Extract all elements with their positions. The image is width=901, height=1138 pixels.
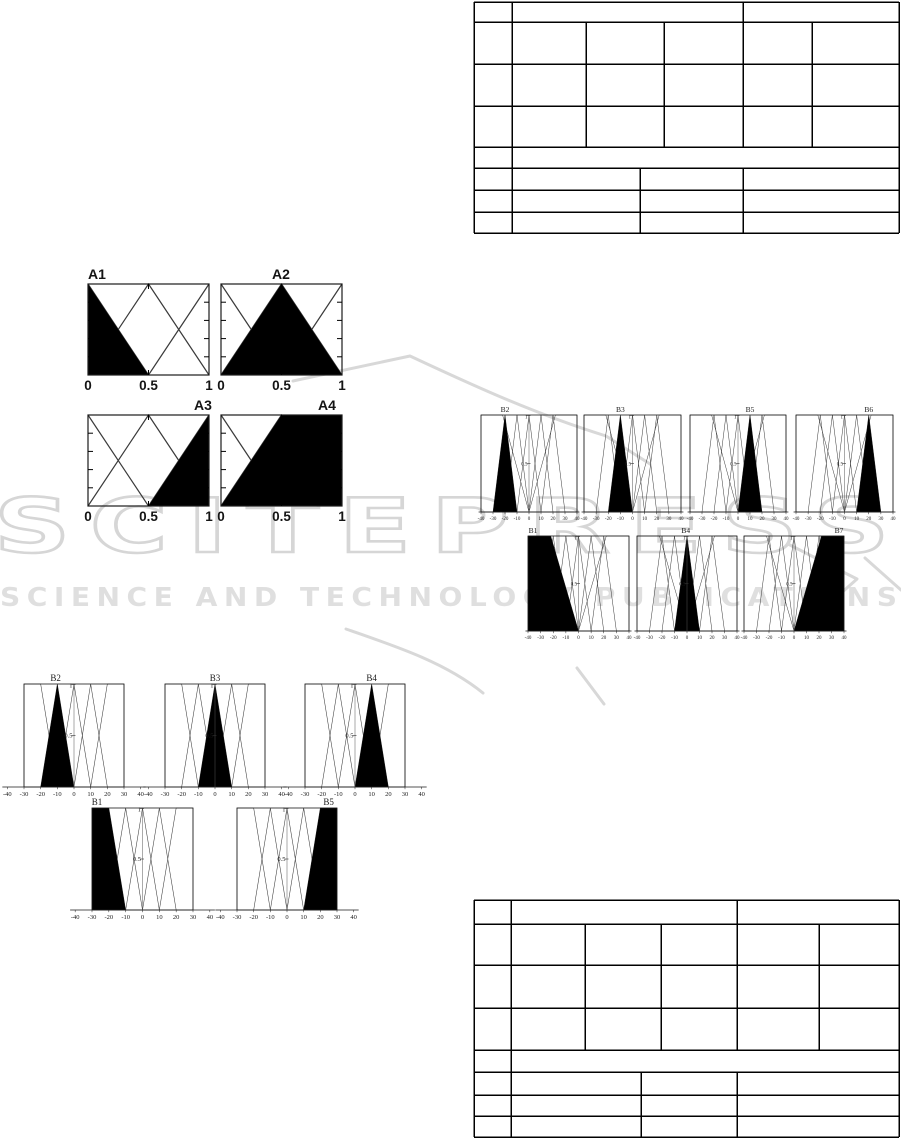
plot-title: B7 bbox=[835, 526, 844, 535]
x-tick-label: 40 bbox=[891, 517, 897, 522]
x-tick-label: 40 bbox=[418, 791, 425, 798]
x-tick-label: 40 bbox=[784, 517, 790, 522]
plot-title: B3 bbox=[210, 673, 221, 683]
x-tick-label: 0 bbox=[72, 791, 75, 798]
x-tick-label: 40 bbox=[350, 914, 357, 921]
plot-title: A4 bbox=[318, 397, 336, 413]
x-tick-label: 0 bbox=[213, 791, 216, 798]
x-tick-label: 0 bbox=[217, 378, 225, 393]
x-tick-label: -20 bbox=[502, 517, 509, 522]
x-tick-label: -40 bbox=[71, 914, 80, 921]
x-tick-label: -40 bbox=[793, 517, 800, 522]
x-tick-label: 0.5 bbox=[272, 509, 291, 524]
x-tick-label: 30 bbox=[614, 636, 620, 641]
table-top-grid bbox=[473, 1, 900, 235]
x-tick-label: 10 bbox=[156, 914, 163, 921]
plot-title: B2 bbox=[50, 673, 61, 683]
x-tick-label: 40 bbox=[679, 517, 685, 522]
y-tick-label-1: 1 bbox=[734, 416, 737, 421]
x-tick-label: 20 bbox=[551, 517, 557, 522]
x-tick-label: -40 bbox=[634, 636, 641, 641]
x-tick-label: -10 bbox=[617, 517, 624, 522]
x-tick-label: 30 bbox=[402, 791, 409, 798]
x-tick-label: 1 bbox=[338, 509, 346, 524]
x-tick-label: 10 bbox=[854, 517, 860, 522]
mf-plot-B2: -40-30-20-1001020304010.5B2 bbox=[478, 405, 580, 522]
x-tick-label: 1 bbox=[338, 378, 346, 393]
mf-plot-B4: -40-30-20-1001020304010.5B4 bbox=[283, 673, 426, 798]
x-tick-label: -40 bbox=[3, 791, 12, 798]
y-tick-label-05: 0.5 bbox=[521, 463, 528, 468]
x-tick-label: -10 bbox=[53, 791, 62, 798]
x-tick-label: -20 bbox=[605, 517, 612, 522]
x-tick-label: 30 bbox=[262, 791, 269, 798]
x-tick-label: -30 bbox=[88, 914, 97, 921]
plot-title: B1 bbox=[92, 797, 103, 807]
x-tick-label: 30 bbox=[772, 517, 778, 522]
x-tick-label: -20 bbox=[659, 636, 666, 641]
x-tick-label: -20 bbox=[249, 914, 258, 921]
x-tick-label: 30 bbox=[878, 517, 884, 522]
x-tick-label: 0 bbox=[793, 636, 796, 641]
x-tick-label: 1 bbox=[205, 509, 213, 524]
plot-title: B1 bbox=[529, 526, 538, 535]
y-tick-label-1: 1 bbox=[210, 683, 213, 690]
x-tick-label: 10 bbox=[300, 914, 307, 921]
x-tick-label: 20 bbox=[654, 517, 660, 522]
x-tick-label: -10 bbox=[563, 636, 570, 641]
x-tick-label: -30 bbox=[593, 517, 600, 522]
x-tick-label: -30 bbox=[537, 636, 544, 641]
x-tick-label: -10 bbox=[829, 517, 836, 522]
mf-plot-B6: -40-30-20-1001020304010.5B6 bbox=[793, 405, 896, 522]
fig-outputs-right: -40-30-20-1001020304010.5B2-40-30-20-100… bbox=[470, 395, 901, 647]
y-tick-label-1: 1 bbox=[282, 807, 285, 814]
mf-plot-B5: -40-30-20-1001020304010.5B5 bbox=[215, 797, 358, 921]
x-tick-label: -40 bbox=[478, 517, 485, 522]
plot-title: B5 bbox=[746, 405, 755, 414]
x-tick-label: -40 bbox=[741, 636, 748, 641]
x-tick-label: -30 bbox=[301, 791, 310, 798]
y-tick-label-05: 0.5 bbox=[679, 583, 686, 588]
x-tick-label: 20 bbox=[104, 791, 111, 798]
x-tick-label: 20 bbox=[601, 636, 607, 641]
plot-title: A1 bbox=[88, 266, 106, 282]
x-tick-label: 0 bbox=[353, 791, 356, 798]
y-tick-label-05: 0.5 bbox=[345, 733, 353, 740]
x-tick-label: -40 bbox=[284, 791, 293, 798]
x-tick-label: -10 bbox=[121, 914, 130, 921]
x-tick-label: -10 bbox=[194, 791, 203, 798]
x-tick-label: 20 bbox=[245, 791, 252, 798]
y-tick-label-1: 1 bbox=[629, 416, 632, 421]
x-tick-label: 10 bbox=[804, 636, 810, 641]
mf-plot-B3: -40-30-20-1001020304010.5B3 bbox=[143, 673, 286, 798]
x-tick-label: 10 bbox=[228, 791, 235, 798]
x-tick-label: -40 bbox=[581, 517, 588, 522]
paper-page: SCITEPRESS SCIENCE AND TECHNOLOGY PUBLIC… bbox=[0, 0, 901, 1138]
y-tick-label-1: 1 bbox=[790, 537, 793, 542]
x-tick-label: 30 bbox=[190, 914, 197, 921]
y-tick-label-05: 0.5 bbox=[64, 733, 72, 740]
x-tick-label: -10 bbox=[266, 914, 275, 921]
y-tick-label-05: 0.5 bbox=[730, 463, 737, 468]
x-tick-label: 0 bbox=[843, 517, 846, 522]
x-tick-label: 10 bbox=[589, 636, 595, 641]
y-tick-label-1: 1 bbox=[575, 537, 578, 542]
fig-inputs: 00.51A100.51A200.51A300.51A4 bbox=[55, 258, 385, 533]
x-tick-label: -40 bbox=[216, 914, 225, 921]
y-tick-label-05: 0.5 bbox=[277, 856, 285, 863]
x-tick-label: 20 bbox=[173, 914, 180, 921]
x-tick-label: -20 bbox=[36, 791, 45, 798]
plot-title: A3 bbox=[194, 397, 212, 413]
x-tick-label: 40 bbox=[735, 636, 741, 641]
x-tick-label: 40 bbox=[137, 791, 144, 798]
x-tick-label: -10 bbox=[514, 517, 521, 522]
plot-title: B5 bbox=[323, 797, 334, 807]
plot-title: B3 bbox=[616, 405, 625, 414]
x-tick-label: 10 bbox=[539, 517, 545, 522]
x-tick-label: 0.5 bbox=[139, 509, 158, 524]
y-tick-label-05: 0.5 bbox=[205, 733, 213, 740]
plot-title: B4 bbox=[366, 673, 377, 683]
mf-plot-B5: -40-30-20-1001020304010.5B5 bbox=[687, 405, 789, 522]
x-tick-label: 0 bbox=[686, 636, 689, 641]
x-tick-label: 30 bbox=[121, 791, 128, 798]
x-tick-label: 30 bbox=[722, 636, 728, 641]
y-tick-label-05: 0.5 bbox=[786, 583, 793, 588]
x-tick-label: 30 bbox=[666, 517, 672, 522]
y-tick-label-1: 1 bbox=[69, 683, 72, 690]
mf-plot-B4: -40-30-20-1001020304010.5B4 bbox=[634, 526, 740, 641]
mf-plot-B2: -40-30-20-1001020304010.5B2 bbox=[2, 673, 145, 798]
y-tick-label-05: 0.5 bbox=[837, 463, 844, 468]
x-tick-label: 30 bbox=[334, 914, 341, 921]
x-tick-label: 40 bbox=[207, 914, 214, 921]
x-tick-label: -30 bbox=[490, 517, 497, 522]
x-tick-label: 40 bbox=[575, 517, 581, 522]
x-tick-label: 30 bbox=[829, 636, 835, 641]
mf-plot-A2: 00.51A2 bbox=[217, 266, 346, 393]
x-tick-label: -10 bbox=[671, 636, 678, 641]
x-tick-label: 10 bbox=[642, 517, 648, 522]
y-tick-label-05: 0.5 bbox=[625, 463, 632, 468]
x-tick-label: 0 bbox=[285, 914, 288, 921]
mf-plot-A4: 00.51A4 bbox=[217, 397, 346, 524]
x-tick-label: -20 bbox=[550, 636, 557, 641]
y-tick-label-1: 1 bbox=[350, 683, 353, 690]
x-tick-label: 1 bbox=[205, 378, 213, 393]
plot-title: B2 bbox=[501, 405, 510, 414]
y-tick-label-1: 1 bbox=[525, 416, 528, 421]
plot-title: B4 bbox=[681, 526, 690, 535]
x-tick-label: -40 bbox=[144, 791, 153, 798]
x-tick-label: -10 bbox=[334, 791, 343, 798]
y-tick-label-1: 1 bbox=[138, 807, 141, 814]
x-tick-label: -40 bbox=[687, 517, 694, 522]
mf-plot-B3: -40-30-20-1001020304010.5B3 bbox=[581, 405, 684, 522]
x-tick-label: -20 bbox=[104, 914, 113, 921]
logo-small-diagonal-stroke bbox=[577, 668, 604, 704]
x-tick-label: 30 bbox=[563, 517, 569, 522]
mf-plot-B1: -40-30-20-1001020304010.5B1 bbox=[525, 526, 632, 641]
x-tick-label: -30 bbox=[20, 791, 29, 798]
x-tick-label: -30 bbox=[646, 636, 653, 641]
x-tick-label: -40 bbox=[525, 636, 532, 641]
y-tick-label-05: 0.5 bbox=[133, 856, 141, 863]
x-tick-label: 0 bbox=[528, 517, 531, 522]
x-tick-label: -30 bbox=[753, 636, 760, 641]
mf-plot-A3: 00.51A3 bbox=[84, 397, 213, 524]
mf-plot-A1: 00.51A1 bbox=[84, 266, 213, 393]
x-tick-label: 20 bbox=[317, 914, 324, 921]
x-tick-label: -10 bbox=[778, 636, 785, 641]
plot-title: B6 bbox=[864, 405, 873, 414]
x-tick-label: -20 bbox=[177, 791, 186, 798]
y-tick-label-05: 0.5 bbox=[571, 583, 578, 588]
x-tick-label: 0 bbox=[141, 914, 144, 921]
x-tick-label: 20 bbox=[866, 517, 872, 522]
x-tick-label: -30 bbox=[699, 517, 706, 522]
x-tick-label: 40 bbox=[627, 636, 633, 641]
y-tick-label-1: 1 bbox=[683, 537, 686, 542]
table-bottom-grid bbox=[473, 899, 900, 1138]
x-tick-label: -10 bbox=[723, 517, 730, 522]
x-tick-label: 10 bbox=[368, 791, 375, 798]
x-tick-label: 20 bbox=[817, 636, 823, 641]
fig-outputs-left: -40-30-20-1001020304010.5B2-40-30-20-100… bbox=[0, 660, 445, 928]
x-tick-label: 20 bbox=[385, 791, 392, 798]
x-tick-label: -20 bbox=[711, 517, 718, 522]
mf-plot-B1: -40-30-20-1001020304010.5B1 bbox=[70, 797, 215, 921]
x-tick-label: -30 bbox=[161, 791, 170, 798]
mf-plot-B7: -40-30-20-1001020304010.5B7 bbox=[741, 526, 847, 641]
plot-title: A2 bbox=[272, 266, 290, 282]
x-tick-label: -20 bbox=[817, 517, 824, 522]
x-tick-label: 40 bbox=[842, 636, 848, 641]
x-tick-label: 0 bbox=[737, 517, 740, 522]
x-tick-label: -20 bbox=[766, 636, 773, 641]
x-tick-label: 10 bbox=[697, 636, 703, 641]
x-tick-label: 0 bbox=[577, 636, 580, 641]
y-tick-label-1: 1 bbox=[841, 416, 844, 421]
x-tick-label: -30 bbox=[233, 914, 242, 921]
x-tick-label: 0 bbox=[84, 378, 92, 393]
x-tick-label: 10 bbox=[748, 517, 754, 522]
x-tick-label: 20 bbox=[760, 517, 766, 522]
x-tick-label: 20 bbox=[710, 636, 716, 641]
x-tick-label: 0.5 bbox=[272, 378, 291, 393]
x-tick-label: 0 bbox=[217, 509, 225, 524]
x-tick-label: -30 bbox=[805, 517, 812, 522]
x-tick-label: 0 bbox=[84, 509, 92, 524]
x-tick-label: 0 bbox=[631, 517, 634, 522]
x-tick-label: 0.5 bbox=[139, 378, 158, 393]
